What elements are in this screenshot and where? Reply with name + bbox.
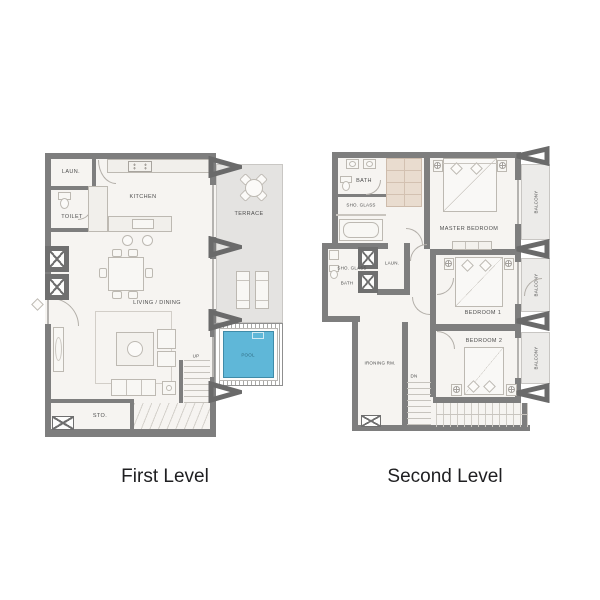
room-label-balcony-bedroom2: BALCONY — [534, 347, 539, 370]
dresser — [452, 241, 492, 250]
shaft-symbol-icon — [361, 415, 381, 427]
shaft-symbol-icon — [361, 250, 375, 266]
room-label-ironing: IRONING RM. — [365, 361, 396, 366]
room-label-bedroom1: BEDROOM 1 — [465, 310, 502, 316]
window — [515, 262, 521, 304]
room-label-laundry2: LAUN. — [385, 261, 399, 266]
window — [515, 180, 521, 224]
wall — [404, 243, 410, 295]
wall — [322, 243, 328, 322]
lamp-icon — [453, 386, 460, 393]
bath-sink — [329, 250, 339, 260]
closet-cabinets — [386, 158, 422, 207]
lamp-icon — [445, 260, 452, 267]
wall — [352, 322, 358, 431]
room-label-balcony-master: BALCONY — [534, 191, 539, 214]
floor-plan-canvas: LAUN. TOILET KITCHEN LIVING / DINING — [0, 0, 600, 600]
room-label-bath-mid: BATH — [341, 281, 353, 286]
stair-hall — [436, 403, 528, 427]
stairs-down — [407, 382, 431, 426]
toilet-bowl — [342, 181, 350, 191]
window — [515, 338, 521, 378]
toilet-bowl — [330, 270, 338, 279]
second-level-plan: BALCONY BALCONY BALCONY — [0, 0, 600, 600]
wall — [336, 194, 386, 197]
bath-sink-bowl — [366, 161, 373, 167]
shaft-symbol-icon — [361, 274, 375, 290]
stairs-down-label: DN — [411, 374, 418, 379]
room-label-shower-upper: SHO. GLASS — [346, 203, 375, 208]
second-level-caption: Second Level — [340, 466, 550, 488]
facade-fin-icon — [514, 383, 550, 403]
facade-fin-icon — [514, 146, 550, 166]
wall — [332, 152, 338, 247]
first-level-caption: First Level — [45, 466, 285, 488]
wall — [424, 158, 430, 249]
wall — [377, 289, 410, 295]
facade-fin-icon — [514, 239, 550, 259]
headboard — [443, 163, 497, 164]
stair-hall-rail — [436, 414, 528, 415]
bathtub-basin — [343, 222, 379, 238]
lamp-icon — [505, 260, 512, 267]
glass-partition — [336, 214, 386, 216]
room-label-master-bedroom: MASTER BEDROOM — [440, 226, 498, 232]
room-label-shower-mid: SHO. GLASS — [337, 266, 366, 271]
room-label-bedroom2: BEDROOM 2 — [466, 338, 503, 344]
bath-sink-bowl — [349, 161, 356, 167]
lamp-icon — [434, 162, 441, 169]
facade-fin-icon — [514, 311, 550, 331]
lamp-icon — [499, 162, 506, 169]
wall — [433, 324, 521, 331]
